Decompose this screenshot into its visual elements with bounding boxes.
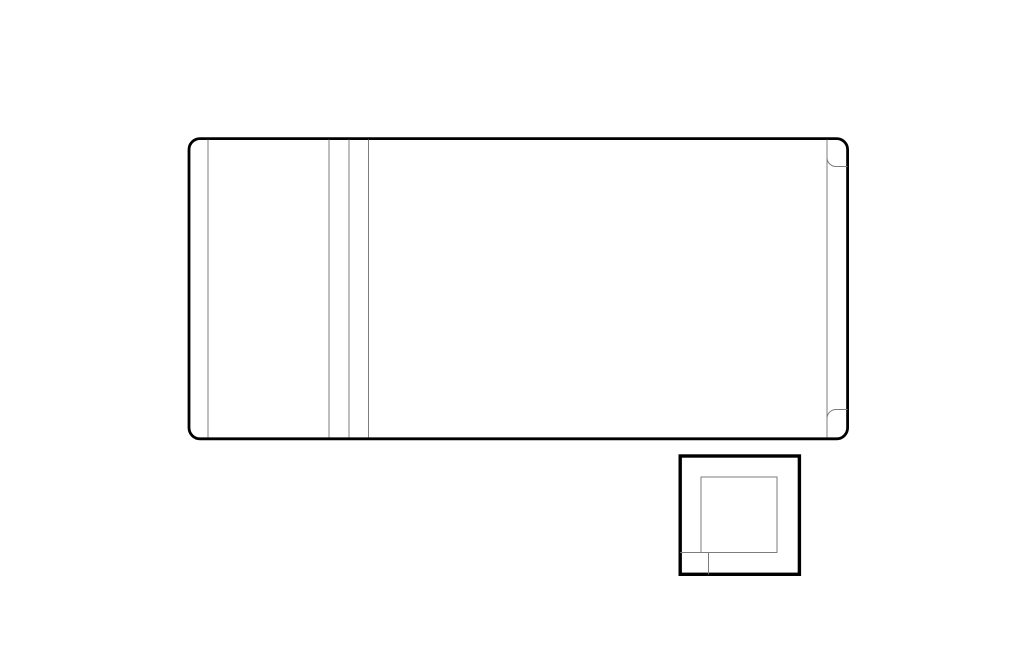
small-unit-outline (680, 456, 799, 574)
drawing-canvas (0, 0, 1024, 663)
large-panel-outline (189, 139, 848, 439)
technical-plan-drawing (0, 0, 1024, 663)
